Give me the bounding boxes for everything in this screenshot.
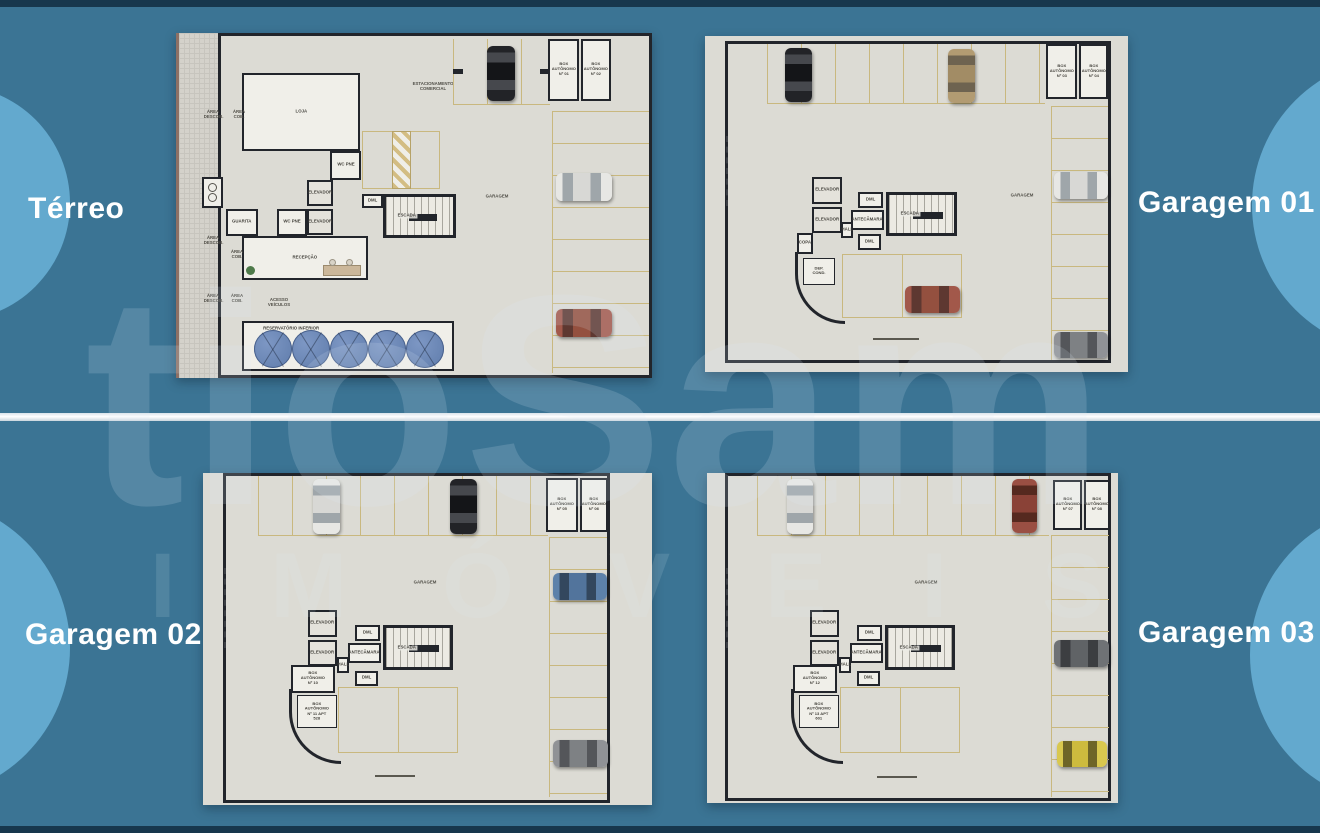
car-white bbox=[1054, 172, 1108, 199]
wall bbox=[223, 800, 610, 803]
car-black bbox=[785, 48, 812, 102]
scale-caption bbox=[877, 776, 917, 778]
room-label: BOX AUTÔNOMO Nº 04 bbox=[1081, 64, 1105, 79]
room-label: HALL bbox=[337, 662, 349, 667]
floor-label-terreo: Térreo bbox=[28, 192, 124, 226]
room-dml: DML bbox=[355, 671, 378, 686]
label-garagem: GARAGEM bbox=[911, 581, 941, 586]
room-label: DML bbox=[362, 676, 371, 681]
label-area-cob: ÁREA COB. bbox=[231, 110, 247, 120]
car-white bbox=[787, 479, 813, 534]
room-label: HALL bbox=[841, 227, 853, 232]
room-label: DML bbox=[865, 630, 874, 635]
room-escada: ESCADA bbox=[886, 192, 957, 236]
water-tank bbox=[254, 330, 292, 368]
room-label: ELEVADOR bbox=[813, 621, 837, 626]
room-box-autonomo-13: BOX AUTÔNOMO Nº 13 APT 601 bbox=[799, 695, 839, 728]
label-estacionamento-comercial: ESTACIONAMENTO COMERCIAL bbox=[411, 82, 454, 92]
room-hall: HALL bbox=[839, 657, 851, 673]
car-red bbox=[556, 309, 612, 337]
plant bbox=[246, 266, 255, 275]
floor-plan-garagem02: BOX AUTÔNOMO Nº 05 BOX AUTÔNOMO Nº 06 GA… bbox=[203, 473, 652, 805]
water-tank bbox=[330, 330, 368, 368]
chair bbox=[346, 259, 353, 266]
room-dep-cond: DEP. COND. bbox=[803, 258, 835, 285]
room-box-autonomo-12: BOX AUTÔNOMO Nº 12 bbox=[793, 665, 837, 693]
wall bbox=[725, 798, 1111, 801]
scale-caption bbox=[873, 338, 919, 340]
room-label: ELEVADOR bbox=[311, 621, 335, 626]
room-elevador: ELEVADOR bbox=[810, 640, 839, 666]
room-dml: DML bbox=[858, 192, 883, 208]
room-copa: COPA bbox=[797, 233, 813, 254]
room-label: ESCADA bbox=[898, 646, 919, 651]
room-elevador: ELEVADOR bbox=[308, 640, 337, 666]
label-area-cob: ÁREA COB. bbox=[229, 294, 245, 304]
room-dml: DML bbox=[857, 625, 882, 641]
room-elevador: ELEVADOR bbox=[810, 610, 839, 637]
horizontal-divider bbox=[0, 413, 1320, 421]
room-lixo bbox=[202, 177, 223, 208]
room-box-autonomo-03: BOX AUTÔNOMO Nº 03 bbox=[1046, 44, 1077, 99]
car-darkgray bbox=[1054, 640, 1109, 667]
dashed-wall bbox=[224, 568, 226, 648]
label-area-descob: ÁREA DESCOB. bbox=[204, 236, 223, 246]
room-label: ELEVADOR bbox=[815, 188, 839, 193]
label-garagem: GARAGEM bbox=[410, 581, 440, 586]
room-label: ESCADA bbox=[396, 646, 417, 651]
floor-plan-garagem01: BOX AUTÔNOMO Nº 03 BOX AUTÔNOMO Nº 04 GA… bbox=[705, 36, 1128, 372]
room-elevador: ELEVADOR bbox=[812, 177, 842, 204]
car-tan bbox=[948, 49, 975, 103]
ramp-hatch bbox=[392, 131, 411, 189]
decor-circle-bottom-right bbox=[1250, 505, 1320, 805]
room-loja: LOJA bbox=[242, 73, 360, 151]
car-blue bbox=[553, 573, 607, 600]
water-tank bbox=[406, 330, 444, 368]
room-label: BOX AUTÔNOMO Nº 06 bbox=[582, 498, 606, 513]
parking-stalls bbox=[1051, 106, 1108, 360]
car-darkred bbox=[1012, 479, 1037, 533]
room-label: DML bbox=[368, 198, 377, 203]
car-black bbox=[487, 46, 515, 101]
wall bbox=[540, 69, 550, 74]
room-escada: ESCADA bbox=[885, 625, 955, 670]
room-box-autonomo-11: BOX AUTÔNOMO Nº 11 APT 528 bbox=[297, 695, 337, 728]
chair bbox=[329, 259, 336, 266]
car-black bbox=[450, 479, 477, 534]
room-elevador: ELEVADOR bbox=[307, 180, 333, 206]
floor-plan-terreo: LOJA WC PNE ELEVADOR ELEVADOR WC PNE GUA… bbox=[176, 33, 652, 378]
room-box-autonomo-01: BOX AUTÔNOMO Nº 01 bbox=[548, 39, 579, 101]
water-tank bbox=[292, 330, 330, 368]
room-box-autonomo-07: BOX AUTÔNOMO Nº 07 bbox=[1053, 480, 1082, 530]
room-label: ELEVADOR bbox=[815, 217, 839, 222]
room-wc-pne: WC PNE bbox=[330, 151, 361, 180]
wall bbox=[218, 375, 652, 378]
room-label: GUARITA bbox=[232, 220, 251, 225]
room-label: ANTECÂMARA bbox=[851, 650, 882, 655]
room-box-autonomo-04: BOX AUTÔNOMO Nº 04 bbox=[1079, 44, 1108, 99]
dashed-wall bbox=[726, 136, 728, 206]
car-gray bbox=[1054, 332, 1108, 358]
room-label: BOX AUTÔNOMO Nº 11 APT 528 bbox=[305, 702, 329, 721]
car-white bbox=[556, 173, 612, 201]
room-label: ELEVADOR bbox=[308, 190, 332, 195]
reception-desk bbox=[323, 265, 361, 276]
dashed-wall bbox=[726, 568, 728, 648]
room-guarita: GUARITA bbox=[226, 209, 258, 236]
room-label: WC PNE bbox=[283, 220, 300, 225]
room-escada: ESCADA bbox=[383, 625, 453, 670]
car-gray bbox=[553, 740, 608, 767]
label-acesso-veiculos: ACESSO VEÍCULOS bbox=[264, 298, 295, 308]
room-label: RECEPÇÃO bbox=[293, 255, 318, 260]
floorplan-poster: LOJA WC PNE ELEVADOR ELEVADOR WC PNE GUA… bbox=[0, 0, 1320, 833]
room-label: BOX AUTÔNOMO Nº 07 bbox=[1055, 498, 1079, 513]
room-label: BOX AUTÔNOMO Nº 10 bbox=[301, 672, 325, 687]
car-white bbox=[313, 479, 340, 534]
trash-bins bbox=[208, 182, 217, 203]
room-label: BOX AUTÔNOMO Nº 02 bbox=[584, 63, 608, 78]
room-label: ELEVADOR bbox=[308, 219, 332, 224]
room-elevador: ELEVADOR bbox=[812, 207, 842, 233]
water-tank bbox=[368, 330, 406, 368]
room-hall: HALL bbox=[337, 657, 349, 673]
room-hall: HALL bbox=[841, 222, 853, 238]
label-area-descob: ÁREA DESCOB. bbox=[204, 294, 223, 304]
room-wc-pne: WC PNE bbox=[277, 209, 307, 236]
room-label: HALL bbox=[839, 662, 851, 667]
room-label: DEP. COND. bbox=[810, 267, 827, 277]
room-dml: DML bbox=[355, 625, 380, 641]
wall bbox=[1108, 41, 1111, 363]
room-label: DML bbox=[864, 676, 873, 681]
room-label: DML bbox=[865, 239, 874, 244]
floor-label-garagem02: Garagem 02 bbox=[25, 618, 202, 652]
room-label: COPA bbox=[799, 241, 811, 246]
room-dml: DML bbox=[857, 671, 880, 686]
room-box-autonomo-06: BOX AUTÔNOMO Nº 06 bbox=[580, 478, 608, 532]
room-box-autonomo-05: BOX AUTÔNOMO Nº 05 bbox=[546, 478, 578, 532]
room-label: DML bbox=[866, 197, 875, 202]
room-label: ESCADA bbox=[396, 214, 417, 219]
top-edge-bar bbox=[0, 0, 1320, 7]
room-label: BOX AUTÔNOMO Nº 08 bbox=[1085, 498, 1109, 513]
room-antecamara: ANTECÂMARA bbox=[850, 643, 883, 663]
bottom-edge-bar bbox=[0, 826, 1320, 833]
room-box-autonomo-10: BOX AUTÔNOMO Nº 10 bbox=[291, 665, 335, 693]
room-elevador: ELEVADOR bbox=[308, 610, 337, 637]
floor-plan-garagem03: BOX AUTÔNOMO Nº 07 BOX AUTÔNOMO Nº 08 GA… bbox=[707, 473, 1118, 803]
room-label: DML bbox=[363, 630, 372, 635]
room-label: ELEVADOR bbox=[311, 650, 335, 655]
label-garagem: GARAGEM bbox=[1007, 194, 1037, 199]
parking-bay bbox=[338, 687, 458, 753]
room-elevador: ELEVADOR bbox=[307, 209, 333, 235]
wall bbox=[725, 360, 1111, 363]
wall bbox=[453, 69, 463, 74]
room-antecamara: ANTECÂMARA bbox=[348, 643, 381, 663]
wall bbox=[218, 33, 652, 36]
room-dml: DML bbox=[362, 194, 383, 208]
parking-stalls bbox=[258, 476, 548, 536]
room-box-autonomo-02: BOX AUTÔNOMO Nº 02 bbox=[581, 39, 611, 101]
label-area-descob: ÁREA DESCOB. bbox=[204, 110, 223, 120]
room-label: WC PNE bbox=[337, 163, 354, 168]
room-label: ESCADA bbox=[899, 212, 920, 217]
floor-label-garagem03: Garagem 03 bbox=[1138, 616, 1315, 650]
label-area-cob: ÁREA COB. bbox=[229, 250, 245, 260]
label-garagem: GARAGEM bbox=[482, 195, 513, 200]
room-label: BOX AUTÔNOMO Nº 13 APT 601 bbox=[807, 702, 831, 721]
room-antecamara: ANTECÂMARA bbox=[851, 210, 884, 230]
floor-label-garagem01: Garagem 01 bbox=[1138, 186, 1315, 220]
room-label: BOX AUTÔNOMO Nº 01 bbox=[551, 63, 575, 78]
room-escada: ESCADA bbox=[383, 194, 456, 238]
room-label: ANTECÂMARA bbox=[349, 650, 380, 655]
room-label: ELEVADOR bbox=[813, 650, 837, 655]
room-label: BOX AUTÔNOMO Nº 12 bbox=[803, 672, 827, 687]
scale-caption bbox=[375, 775, 415, 777]
car-yellow bbox=[1057, 741, 1107, 767]
wall bbox=[649, 33, 652, 378]
room-label: ANTECÂMARA bbox=[852, 217, 883, 222]
room-dml: DML bbox=[858, 234, 881, 250]
room-label: BOX AUTÔNOMO Nº 03 bbox=[1049, 64, 1073, 79]
parking-bay bbox=[840, 687, 960, 753]
room-label: BOX AUTÔNOMO Nº 05 bbox=[550, 498, 574, 513]
room-box-autonomo-08: BOX AUTÔNOMO Nº 08 bbox=[1084, 480, 1110, 530]
room-label: LOJA bbox=[295, 109, 307, 114]
car-red bbox=[905, 286, 960, 313]
